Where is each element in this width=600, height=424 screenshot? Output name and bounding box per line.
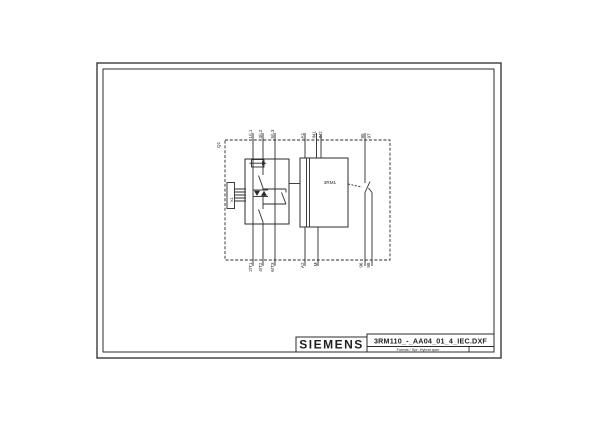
siemens-logo: SIEMENS xyxy=(299,338,364,352)
terminal-label-96: 96 xyxy=(359,262,364,268)
no-contact-bottom-icon xyxy=(259,210,264,223)
relay-coil-symbol xyxy=(250,160,267,168)
aux-contact-hook-icon xyxy=(369,188,373,193)
terminal-label-A2: A2 xyxy=(300,262,305,268)
control-lines-bottom xyxy=(305,227,318,266)
main-contact-block xyxy=(245,133,289,266)
terminal-label-1L1: 1/L1 xyxy=(248,129,253,138)
no-contact-top-icon xyxy=(259,176,264,189)
galvanic-isolation-lines xyxy=(307,158,310,227)
page-frame-inner xyxy=(103,69,494,352)
terminal-label-4T2: 4/T2 xyxy=(258,262,263,272)
terminal-label-IN2: IN2 xyxy=(318,131,323,139)
terminal-label-95: 95 xyxy=(360,133,365,139)
terminal-label-M: M xyxy=(313,262,318,266)
connector-block: X1 xyxy=(227,183,246,209)
terminal-label-97: 97 xyxy=(367,133,372,139)
drawing-meta: Format / Spr: Hybrid quer xyxy=(397,348,441,352)
connector-wires xyxy=(235,189,247,201)
actuator-link xyxy=(348,184,362,187)
triac-symbol xyxy=(253,190,268,197)
drawing-filename: 3RM110_-_AA04_01_4_IEC.DXF xyxy=(374,337,487,346)
thyristor-up-icon xyxy=(261,191,267,196)
bypass-lead-top xyxy=(263,189,286,193)
terminal-label-98: 98 xyxy=(366,262,371,268)
aux-changeover-contact xyxy=(365,133,372,266)
schematic-svg: Q1 xyxy=(0,0,600,424)
bottom-terminal-labels: 2/T1 4/T2 6/T3 A2 M 96 98 xyxy=(248,262,371,272)
device-tag: Q1 xyxy=(216,141,221,148)
bypass-contact-icon xyxy=(282,193,287,205)
terminal-label-IN1: IN1 xyxy=(312,131,317,139)
connector-outline xyxy=(227,183,235,209)
terminal-label-A1: A1 xyxy=(300,132,305,138)
control-block-label: 3RM1 xyxy=(324,180,337,185)
connector-label: X1 xyxy=(229,196,234,202)
terminal-label-2T1: 2/T1 xyxy=(248,262,253,272)
terminal-label-3L2: 3/L2 xyxy=(258,129,263,138)
terminal-label-5L3: 5/L3 xyxy=(270,129,275,138)
main-block-outline xyxy=(245,159,289,224)
top-terminal-labels: 1/L1 3/L2 5/L3 A1 IN1 IN2 95 97 xyxy=(248,129,372,138)
page-frame-outer xyxy=(97,63,501,358)
drawing-sheet: Q1 xyxy=(0,0,600,424)
thyristor-down-icon xyxy=(254,191,260,196)
title-block: SIEMENS 3RM110_-_AA04_01_4_IEC.DXF Forma… xyxy=(296,334,494,352)
control-block: 3RM1 xyxy=(300,133,348,266)
aux-contact-blade-icon xyxy=(365,182,370,193)
control-block-outline xyxy=(300,158,348,227)
terminal-label-6T3: 6/T3 xyxy=(270,262,275,272)
